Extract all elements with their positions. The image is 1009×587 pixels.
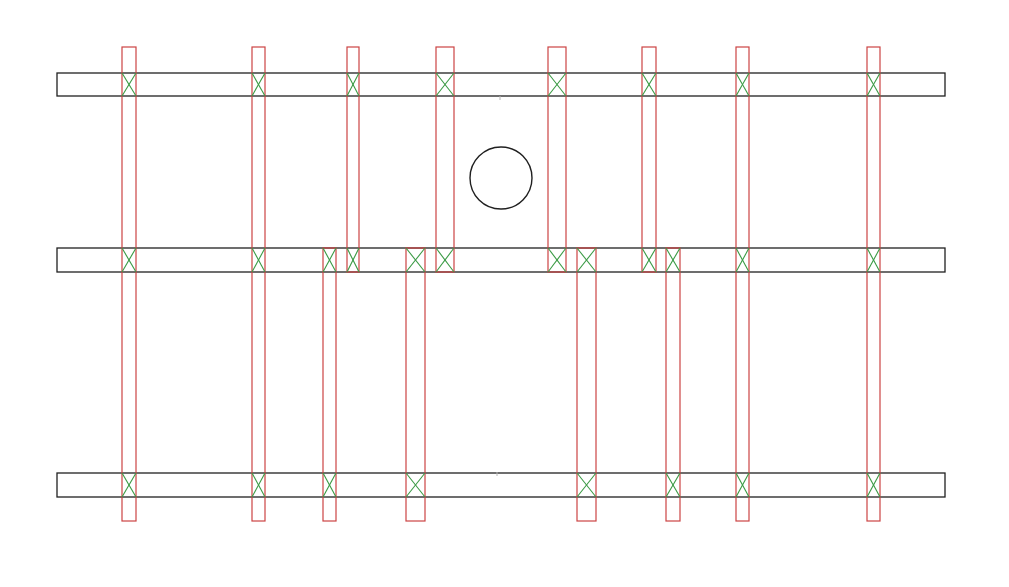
strip-08-lower xyxy=(577,248,596,521)
strip-01-full xyxy=(122,47,136,521)
rail-bottom xyxy=(57,473,945,497)
strip-03-lower xyxy=(323,248,336,521)
strip-05-lower xyxy=(406,248,425,521)
rail-top xyxy=(57,73,945,96)
rail-middle xyxy=(57,248,945,272)
strip-11-full xyxy=(736,47,749,521)
hole-circle xyxy=(470,147,532,209)
strip-09-upper xyxy=(642,47,656,272)
diagram-canvas xyxy=(0,0,1009,587)
strip-12-full xyxy=(867,47,880,521)
strip-07-upper xyxy=(548,47,566,272)
strip-10-lower xyxy=(666,248,680,521)
framing-drawing xyxy=(0,0,1009,587)
strip-06-upper xyxy=(436,47,454,272)
strip-04-upper xyxy=(347,47,359,272)
strip-02-full xyxy=(252,47,265,521)
